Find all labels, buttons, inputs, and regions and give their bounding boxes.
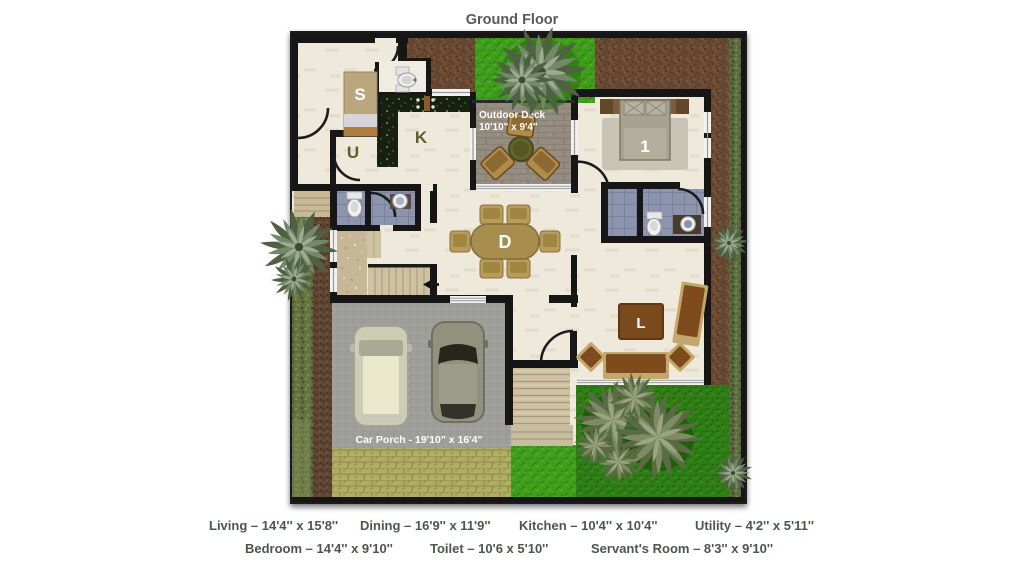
svg-text:K: K [415,128,428,147]
svg-text:Toilet – 10'6 x 5'10'': Toilet – 10'6 x 5'10'' [430,541,548,556]
svg-text:Car Porch - 19'10" x 16'4": Car Porch - 19'10" x 16'4" [355,434,482,446]
svg-text:Kitchen – 10'4'' x 10'4'': Kitchen – 10'4'' x 10'4'' [519,518,658,533]
svg-text:D: D [499,232,512,252]
svg-text:10'10" x 9'4": 10'10" x 9'4" [479,122,538,133]
svg-text:S: S [354,85,365,104]
svg-text:U: U [347,143,359,162]
svg-text:L: L [636,315,645,332]
svg-text:Ground Floor: Ground Floor [466,12,559,28]
svg-text:Servant's Room – 8'3'' x 9'10': Servant's Room – 8'3'' x 9'10'' [591,541,773,556]
svg-text:Living – 14'4'' x 15'8'': Living – 14'4'' x 15'8'' [209,518,338,533]
svg-text:Dining – 16'9'' x 11'9'': Dining – 16'9'' x 11'9'' [360,518,491,533]
svg-text:Utility – 4'2'' x 5'11'': Utility – 4'2'' x 5'11'' [695,518,814,533]
svg-text:Bedroom – 14'4'' x 9'10'': Bedroom – 14'4'' x 9'10'' [245,541,393,556]
svg-text:1: 1 [640,137,649,156]
svg-text:Outdoor Deck: Outdoor Deck [479,110,546,121]
